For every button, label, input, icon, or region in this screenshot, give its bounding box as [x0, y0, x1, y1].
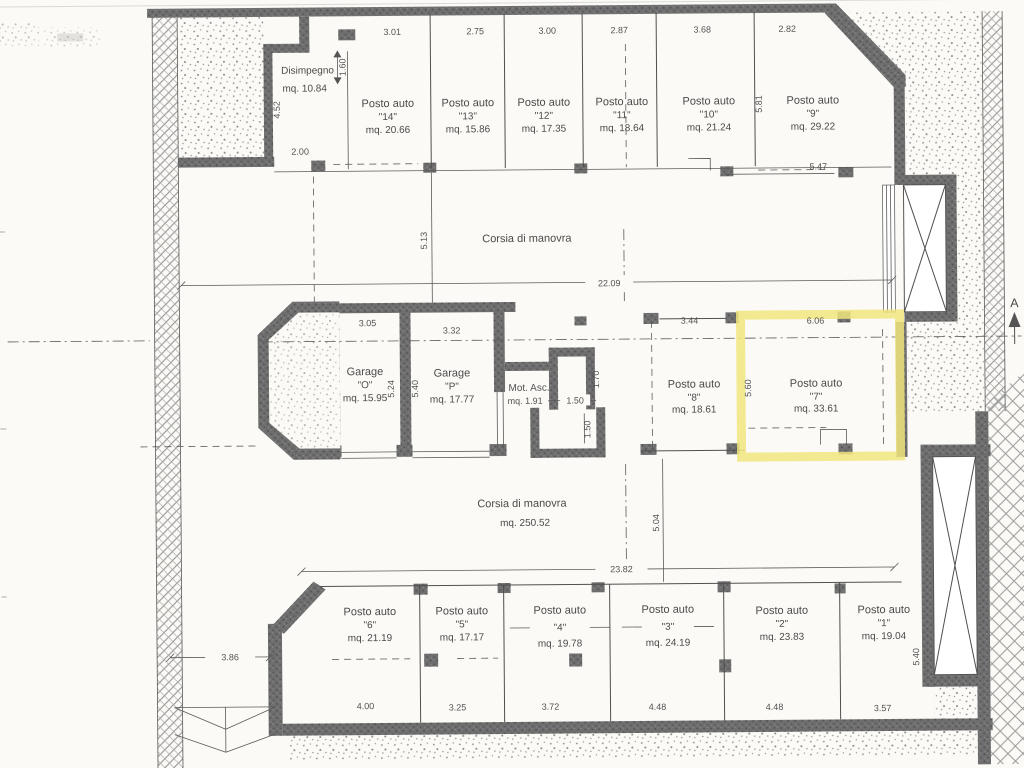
posto-13-number: "13" — [459, 111, 478, 122]
posto-7-name: Posto auto — [790, 377, 843, 389]
dim-width-4: 3.72 — [542, 702, 560, 712]
posto-auto-8: 3.44 Posto auto "8" mq. 18.61 — [667, 315, 720, 415]
garage-O: 3.05 Garage "O" mq. 15.95 5.24 — [342, 318, 396, 404]
garage-p-number: "P" — [445, 381, 459, 392]
posto-11-area: mq. 18.64 — [600, 123, 645, 134]
posto-auto-3: Posto auto "3" mq. 24.19 4.48 — [641, 604, 694, 712]
bay-structure — [257, 301, 340, 460]
posto-11-name: Posto auto — [595, 96, 648, 108]
dim-width-2: 4.48 — [766, 702, 784, 712]
posto-7-number: "7" — [810, 392, 823, 403]
dim-width-10: 3.68 — [693, 24, 711, 34]
dim-width-5: 3.25 — [449, 702, 467, 712]
posto-14-name: Posto auto — [361, 98, 414, 110]
posto-auto-1: Posto auto "1" mq. 19.04 3.57 5.40 — [857, 604, 921, 713]
posto-3-name: Posto auto — [641, 604, 694, 616]
garage-p-area: mq. 17.77 — [430, 394, 475, 405]
posto-9-area: mq. 29.22 — [791, 121, 836, 132]
dim-depth-garage-p: 5.40 — [410, 380, 420, 398]
posto-10-number: "10" — [700, 109, 719, 120]
dim-corsia-lower-width: 23.82 — [610, 564, 633, 574]
dim-width-7: 6.06 — [807, 316, 825, 326]
posto-auto-13: 2.75 Posto auto "13" mq. 15.86 — [441, 26, 494, 135]
posto-6-area: mq. 21.19 — [348, 633, 393, 644]
posto-11-number: "11" — [613, 110, 631, 121]
posto-auto-14: 3.01 Posto auto "14" mq. 20.66 — [361, 27, 414, 136]
posto-6-name: Posto auto — [343, 606, 396, 618]
garage-o-name: Garage — [347, 366, 384, 378]
floor-plan-drawing: A Disimpegno mq. 10.84 1.60 4.52 2.00 3.… — [0, 0, 1024, 768]
posto-9-number: "9" — [807, 109, 820, 120]
dim-corsia-upper-width: 22.09 — [598, 278, 621, 288]
disimpegno-area: mq. 10.84 — [282, 83, 327, 94]
scanned-garage-floor-plan: A Disimpegno mq. 10.84 1.60 4.52 2.00 3.… — [0, 0, 1024, 768]
ramp-box-upper — [882, 185, 946, 312]
posto-14-area: mq. 20.66 — [366, 125, 411, 136]
dim-corsia-upper-depth: 5.13 — [419, 232, 429, 250]
dim-disimpegno-door: 1.60 — [337, 59, 347, 77]
posto-7-area: mq. 33.61 — [794, 403, 839, 414]
disimpegno-label: Disimpegno — [281, 65, 334, 76]
earth-hatch-left — [152, 18, 183, 768]
posto-13-area: mq. 15.86 — [446, 124, 491, 135]
dim-width-garage-p: 3.32 — [443, 325, 461, 335]
ramp-box-lower — [933, 456, 978, 674]
posto-2-name: Posto auto — [755, 605, 808, 617]
posto-9-name: Posto auto — [786, 94, 839, 106]
posto-14-number: "14" — [379, 112, 398, 123]
posto-4-number: "4" — [554, 623, 567, 634]
mot-asc-area: mq. 1.91 — [508, 396, 543, 406]
dim-width-9: 2.82 — [778, 24, 796, 34]
dim-corsia-lower-depth: 5.04 — [651, 514, 661, 532]
paving-grid — [988, 372, 1024, 764]
posto-3-area: mq. 24.19 — [646, 638, 691, 649]
posto-auto-12: 3.00 Posto auto "12" mq. 17.35 — [517, 26, 570, 135]
posto-4-area: mq. 19.78 — [538, 638, 583, 649]
section-arrow: A — [1008, 296, 1020, 344]
posto-auto-11: 2.87 Posto auto "11" mq. 18.64 — [595, 25, 648, 134]
garage-o-area: mq. 15.95 — [343, 393, 388, 404]
corsia-lower-area: mq. 250.52 — [500, 518, 551, 529]
dim-width-6: 4.00 — [357, 701, 375, 711]
posto-10-area: mq. 21.24 — [687, 122, 732, 133]
earth-hatch-right — [982, 11, 1005, 411]
posto-auto-2: Posto auto "2" mq. 23.83 4.48 — [755, 605, 808, 712]
dim-right-offset: 5.47 — [809, 162, 827, 172]
dim-motasc-w: 1.50 — [566, 395, 584, 405]
dim-depth-garage-o: 5.24 — [386, 380, 396, 398]
dim-width-12: 3.00 — [538, 26, 556, 36]
posto-4-name: Posto auto — [533, 604, 586, 616]
posto-auto-5: Posto auto "5" mq. 17.17 3.25 — [435, 605, 488, 712]
posto-auto-6: Posto auto "6" mq. 21.19 4.00 — [343, 606, 396, 711]
dim-width-garage-o: 3.05 — [359, 318, 377, 328]
posto-8-name: Posto auto — [668, 378, 721, 390]
posto-auto-7: 6.06 Posto auto "7" mq. 33.61 5.60 — [742, 315, 842, 415]
garage-P: 3.32 Garage "P" mq. 17.77 5.40 — [410, 325, 475, 406]
posto-8-number: "8" — [688, 393, 701, 404]
posto-12-number: "12" — [535, 111, 554, 122]
posto-1-number: "1" — [878, 618, 891, 629]
posto-2-number: "2" — [776, 619, 789, 630]
posto-5-number: "5" — [456, 619, 469, 630]
garage-p-name: Garage — [434, 367, 471, 379]
posto-12-area: mq. 17.35 — [522, 124, 567, 135]
posto-8-area: mq. 18.61 — [672, 404, 717, 415]
dim-motasc-h: 1.70 — [591, 371, 601, 389]
dim-disimpegno-width: 2.00 — [291, 147, 309, 157]
posto-12-name: Posto auto — [517, 97, 570, 109]
dim-depth-7: 5.60 — [743, 379, 753, 397]
dim-ramp-width: 3.86 — [221, 652, 239, 662]
posto-6-number: "6" — [364, 620, 377, 631]
posto-3-number: "3" — [662, 622, 675, 633]
corsia-lower-label: Corsia di manovra — [477, 498, 567, 511]
posto-2-area: mq. 23.83 — [760, 632, 805, 643]
dim-width-8: 3.44 — [681, 316, 699, 326]
posto-auto-10: 3.68 Posto auto "10" mq. 21.24 — [682, 24, 735, 133]
posto-1-area: mq. 19.04 — [862, 631, 907, 642]
posto-5-name: Posto auto — [435, 605, 488, 617]
dim-width-3: 4.48 — [649, 702, 667, 712]
dim-disimpegno-height: 4.52 — [272, 101, 282, 119]
dim-width-1: 3.57 — [874, 703, 892, 713]
posto-auto-9: 2.82 Posto auto "9" mq. 29.22 5.81 5.47 — [753, 23, 839, 172]
posto-1-name: Posto auto — [857, 604, 910, 616]
mot-asc-label: Mot. Asc. — [508, 383, 549, 394]
dim-width-14: 3.01 — [383, 27, 401, 37]
disimpegno-room: Disimpegno mq. 10.84 1.60 4.52 2.00 — [271, 59, 348, 157]
dim-width-11: 2.87 — [610, 25, 628, 35]
corsia-upper-label: Corsia di manovra — [482, 233, 572, 246]
ramp-triangle-symbol — [175, 707, 276, 753]
posto-13-name: Posto auto — [441, 97, 494, 109]
dim-width-13: 2.75 — [466, 26, 484, 36]
dim-depth-9: 5.81 — [754, 95, 764, 113]
dim-depth-1: 5.40 — [911, 648, 921, 666]
section-marker-label: A — [1010, 296, 1019, 310]
posto-10-name: Posto auto — [682, 95, 735, 107]
garage-o-number: "O" — [358, 380, 373, 391]
dim-motasc-v: 1.50 — [582, 421, 592, 439]
posto-5-area: mq. 17.17 — [440, 632, 485, 643]
